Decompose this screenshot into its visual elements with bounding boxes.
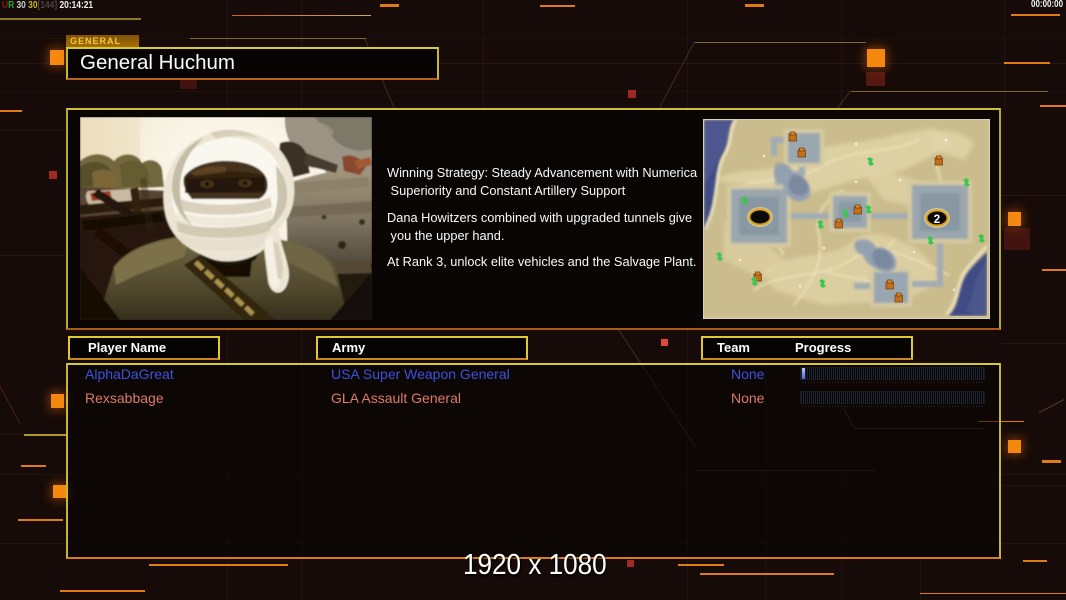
svg-text:2: 2 [934,214,940,226]
